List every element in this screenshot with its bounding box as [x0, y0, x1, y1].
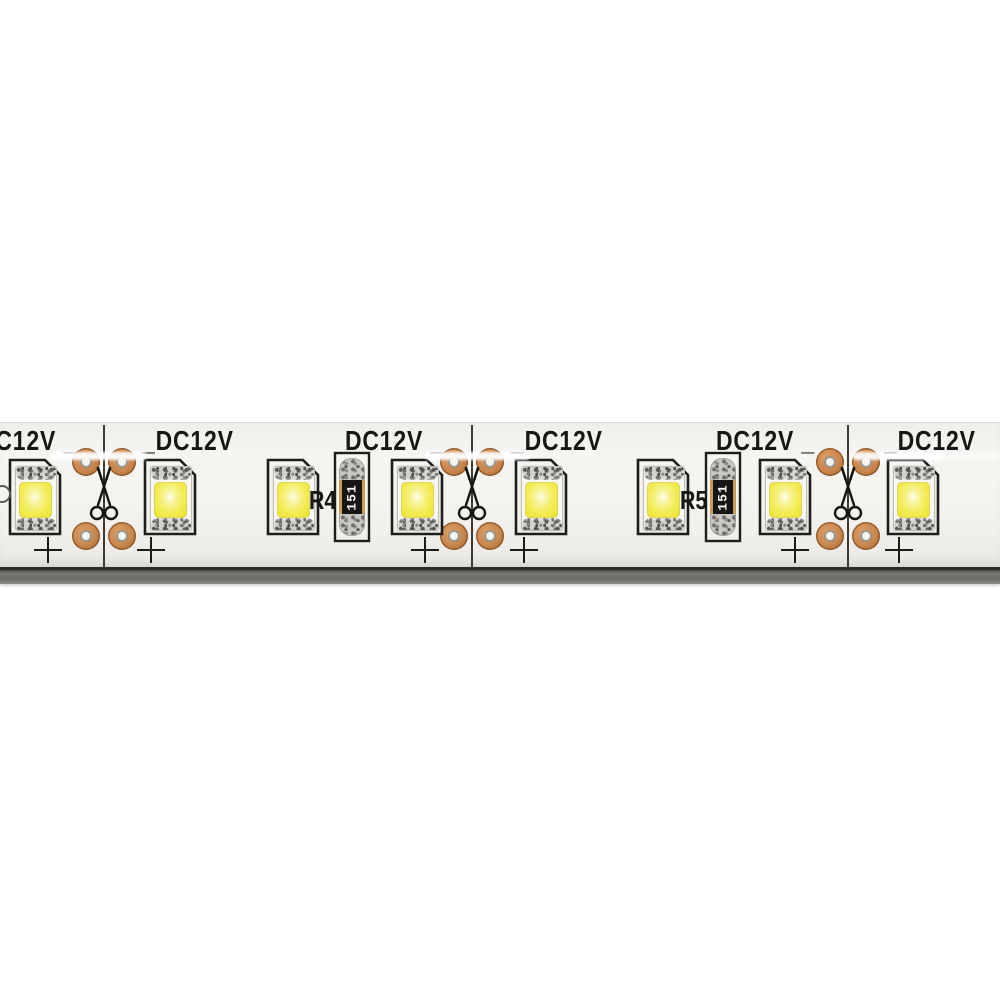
led-emitter	[769, 482, 802, 518]
led-electrode-bottom	[894, 518, 934, 530]
resistor: 151 R5	[704, 451, 742, 543]
solder-pad	[440, 522, 468, 550]
solder-pad	[476, 522, 504, 550]
led-emitter	[401, 482, 434, 518]
solder-pad	[72, 522, 100, 550]
led-electrode-bottom	[644, 518, 684, 530]
strip-face: DC12V __DC12VDC12V __DC12VDC12V __DC12V	[0, 422, 1000, 570]
polarity-plus-mark	[885, 537, 913, 563]
resistor-code: 151	[339, 480, 365, 514]
led-electrode-top	[644, 467, 684, 480]
led-chip	[514, 458, 568, 536]
led-electrode-top	[398, 467, 438, 480]
resistor-body: 151	[710, 458, 736, 536]
voltage-label: DC12V _	[0, 427, 77, 455]
scissors-icon	[454, 467, 490, 525]
product-photo: DC12V __DC12VDC12V __DC12VDC12V __DC12V	[0, 0, 1000, 1000]
led-electrode-bottom	[398, 518, 438, 530]
polarity-plus-mark	[137, 537, 165, 563]
led-chip	[143, 458, 197, 536]
polarity-plus-mark	[510, 537, 538, 563]
solder-pad	[852, 522, 880, 550]
led-chip	[886, 458, 940, 536]
scissors-icon	[86, 467, 122, 525]
led-electrode-top	[894, 467, 934, 480]
led-electrode-bottom	[274, 518, 314, 530]
glare-streak	[932, 452, 1000, 460]
led-package	[893, 466, 935, 531]
led-emitter	[647, 482, 680, 518]
led-electrode-bottom	[16, 518, 56, 530]
led-emitter	[277, 482, 310, 518]
glare-streak	[425, 452, 530, 460]
led-emitter	[154, 482, 187, 518]
led-package	[643, 466, 685, 531]
resistor-label: R5	[680, 487, 707, 513]
glare-streak	[52, 452, 147, 460]
resistor: 151 R4	[333, 451, 371, 543]
solder-pad	[816, 522, 844, 550]
led-package	[765, 466, 807, 531]
led-electrode-bottom	[766, 518, 806, 530]
led-electrode-top	[274, 467, 314, 480]
polarity-plus-mark	[34, 537, 62, 563]
resistor-body: 151	[339, 458, 365, 536]
voltage-label: _DC12V	[142, 427, 234, 455]
glare-streak	[852, 452, 942, 460]
led-package	[397, 466, 439, 531]
voltage-label: _DC12V	[511, 427, 603, 455]
strip-side-edge	[0, 570, 1000, 584]
led-electrode-top	[766, 467, 806, 480]
led-chip	[8, 458, 62, 536]
led-chip	[390, 458, 444, 536]
resistor-label: R4	[309, 487, 336, 513]
led-chip	[758, 458, 812, 536]
led-electrode-top	[151, 467, 191, 480]
led-strip: DC12V __DC12VDC12V __DC12VDC12V __DC12V	[0, 422, 1000, 584]
led-package	[15, 466, 57, 531]
led-electrode-bottom	[522, 518, 562, 530]
led-electrode-bottom	[151, 518, 191, 530]
scissors-icon	[830, 467, 866, 525]
resistor-code: 151	[710, 480, 736, 514]
polarity-plus-mark	[781, 537, 809, 563]
led-emitter	[19, 482, 52, 518]
voltage-label: _DC12V	[884, 427, 976, 455]
polarity-plus-mark	[411, 537, 439, 563]
led-package	[150, 466, 192, 531]
led-electrode-top	[16, 467, 56, 480]
led-electrode-top	[522, 467, 562, 480]
led-emitter	[525, 482, 558, 518]
solder-pad	[108, 522, 136, 550]
led-package	[521, 466, 563, 531]
led-emitter	[897, 482, 930, 518]
